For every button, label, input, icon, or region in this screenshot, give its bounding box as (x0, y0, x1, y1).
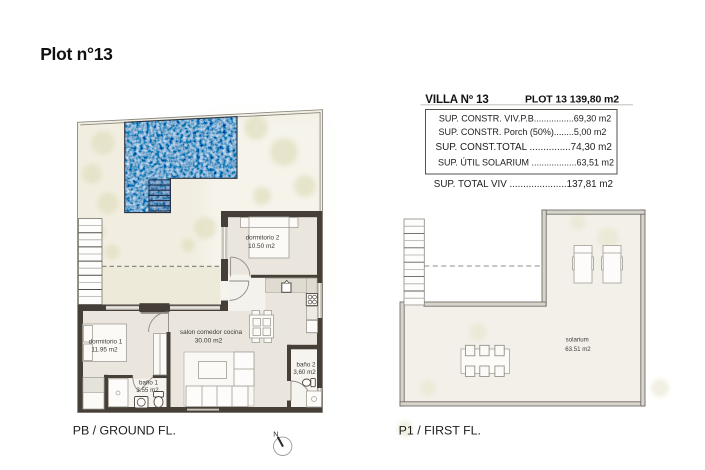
svg-text:11.95 m2: 11.95 m2 (91, 347, 118, 354)
svg-text:salon comedor cocina: salon comedor cocina (180, 329, 243, 336)
svg-text:3.55 m2: 3.55 m2 (136, 387, 159, 394)
svg-text:SUP. CONST.TOTAL .............: SUP. CONST.TOTAL ...............74,30 m2 (436, 142, 612, 153)
svg-text:10.50 m2: 10.50 m2 (248, 243, 275, 250)
svg-text:SUP. TOTAL VIV ...............: SUP. TOTAL VIV .....................137,… (434, 179, 613, 190)
svg-text:3,60 m2: 3,60 m2 (293, 369, 316, 376)
svg-text:30.00 m2: 30.00 m2 (195, 337, 223, 344)
svg-text:PB / GROUND FL.: PB / GROUND FL. (73, 424, 176, 438)
svg-text:SUP. CONSTR. VIV.P.B..........: SUP. CONSTR. VIV.P.B................69,3… (439, 114, 611, 124)
svg-text:PLOT 13 139,80 m2: PLOT 13 139,80 m2 (525, 94, 619, 106)
svg-text:dormitorio 2: dormitorio 2 (246, 235, 280, 242)
svg-text:baño 2: baño 2 (297, 362, 316, 369)
svg-text:Plot n°13: Plot n°13 (40, 44, 113, 64)
svg-text:dormitorio 1: dormitorio 1 (89, 339, 123, 346)
svg-text:solarium: solarium (566, 337, 589, 344)
svg-text:SUP. ÚTIL SOLARIUM ...........: SUP. ÚTIL SOLARIUM ..................63,… (438, 158, 614, 168)
svg-text:VILLA Nº 13: VILLA Nº 13 (425, 94, 488, 106)
svg-text:63.51 m2: 63.51 m2 (565, 346, 591, 353)
svg-text:SUP. CONSTR. Porch (50%)......: SUP. CONSTR. Porch (50%)........5,00 m2 (439, 127, 607, 137)
svg-text:P1 / FIRST FL.: P1 / FIRST FL. (399, 424, 481, 438)
svg-text:N: N (273, 429, 278, 438)
svg-text:baño 1: baño 1 (139, 380, 158, 387)
